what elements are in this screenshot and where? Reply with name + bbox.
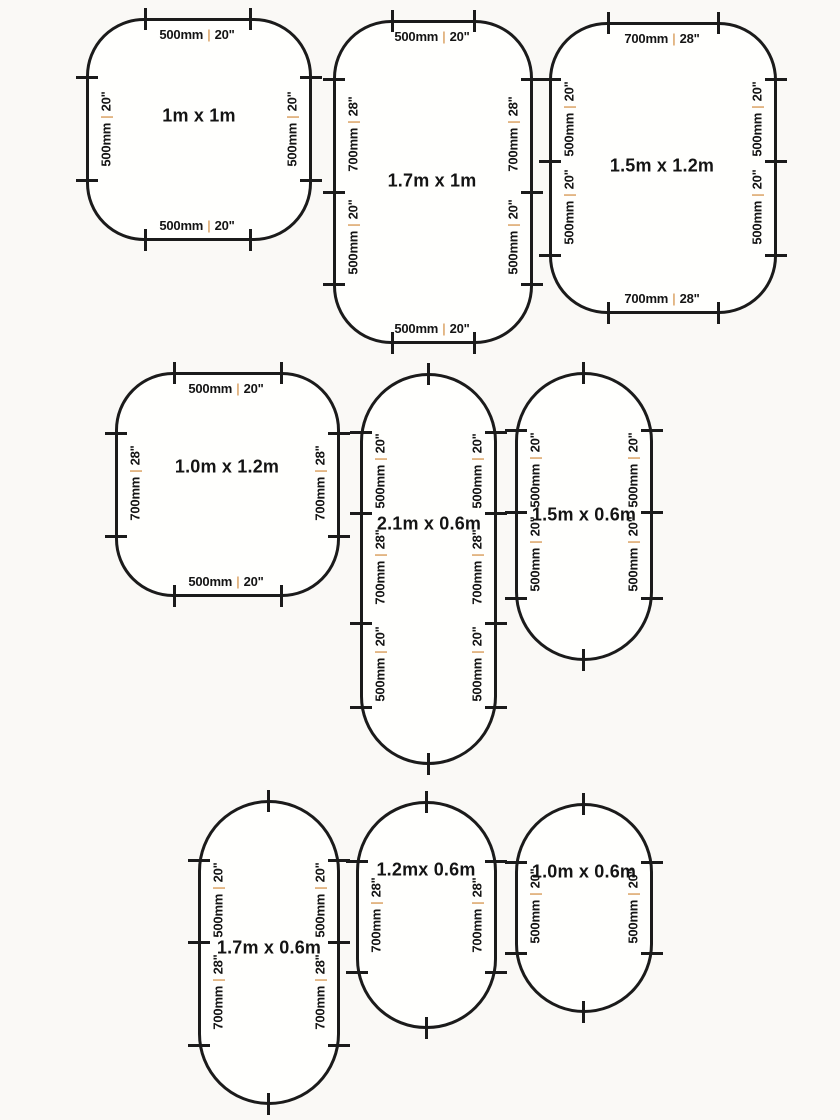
- mm-value: 500mm: [562, 113, 577, 157]
- separator: |: [750, 105, 765, 108]
- inch-value: 20": [470, 433, 485, 453]
- edge-label-right: 500mm|20": [751, 169, 764, 244]
- tick-mark: [249, 8, 252, 30]
- separator: |: [672, 291, 675, 306]
- size-diagram-sheet: 1m x 1m 500mm|20" 500mm|20" 500mm|20" 50…: [0, 0, 840, 1120]
- inch-value: 28": [470, 529, 485, 549]
- inch-value: 20": [528, 868, 543, 888]
- inch-value: 20": [750, 169, 765, 189]
- tick-mark: [641, 429, 663, 432]
- mm-value: 500mm: [750, 201, 765, 245]
- tick-mark: [391, 10, 394, 32]
- tick-mark: [328, 535, 350, 538]
- inch-value: 20": [506, 199, 521, 219]
- tick-mark: [249, 229, 252, 251]
- edge-label-top: 500mm|20": [159, 28, 234, 41]
- edge-label-right: 500mm|20": [507, 199, 520, 274]
- tick-mark: [300, 76, 322, 79]
- size-title: 1.0m x 1.2m: [175, 457, 279, 478]
- separator: |: [373, 553, 388, 556]
- edge-label-right: 500mm|20": [314, 862, 327, 937]
- edge-label-right: 500mm|20": [627, 868, 640, 943]
- edge-label-right: 500mm|20": [751, 81, 764, 156]
- tick-mark: [76, 76, 98, 79]
- diagram-shape-1-5m-x-0-6m: 1.5m x 0.6m 500mm|20" 500mm|20" 500mm|20…: [515, 372, 653, 661]
- separator: |: [506, 223, 521, 226]
- tick-mark: [105, 535, 127, 538]
- separator: |: [562, 193, 577, 196]
- separator: |: [313, 469, 328, 472]
- separator: |: [470, 650, 485, 653]
- tick-mark: [173, 585, 176, 607]
- mm-value: 500mm: [373, 465, 388, 509]
- diagram-shape-2-1m-x-0-6m: 2.1m x 0.6m 500mm|20" 700mm|28" 500mm|20…: [360, 373, 497, 765]
- tick-mark: [280, 362, 283, 384]
- mm-value: 500mm: [750, 113, 765, 157]
- mm-value: 500mm: [188, 381, 232, 396]
- inch-value: 20": [626, 868, 641, 888]
- edge-label-right: 500mm|20": [627, 432, 640, 507]
- mm-value: 500mm: [188, 574, 232, 589]
- tick-mark: [328, 1044, 350, 1047]
- edge-label-left: 500mm|20": [374, 626, 387, 701]
- mm-value: 500mm: [528, 548, 543, 592]
- inch-value: 20": [528, 516, 543, 536]
- size-title: 2.1m x 0.6m: [377, 514, 481, 535]
- separator: |: [313, 886, 328, 889]
- tick-mark: [350, 706, 372, 709]
- inch-value: 20": [99, 91, 114, 111]
- diagram-shape-1-2m-x-0-6m: 1.2mx 0.6m 700mm|28" 700mm|28": [356, 801, 497, 1029]
- size-title: 1.2mx 0.6m: [376, 860, 475, 881]
- separator: |: [346, 120, 361, 123]
- mm-value: 700mm: [470, 909, 485, 953]
- separator: |: [528, 456, 543, 459]
- mm-value: 500mm: [562, 201, 577, 245]
- mm-value: 500mm: [470, 658, 485, 702]
- tick-mark: [323, 78, 345, 81]
- inch-value: 20": [750, 81, 765, 101]
- edge-label-left: 500mm|20": [563, 81, 576, 156]
- tick-mark: [485, 860, 507, 863]
- edge-label-right: 500mm|20": [471, 626, 484, 701]
- inch-value: 28": [506, 96, 521, 116]
- edge-label-right: 700mm|28": [314, 954, 327, 1029]
- tick-mark: [188, 1044, 210, 1047]
- tick-mark: [144, 229, 147, 251]
- mm-value: 700mm: [369, 909, 384, 953]
- mm-value: 700mm: [313, 986, 328, 1030]
- inch-value: 20": [215, 27, 235, 42]
- tick-mark: [765, 160, 787, 163]
- edge-label-left: 500mm|20": [212, 862, 225, 937]
- size-title: 1.5m x 0.6m: [532, 505, 636, 526]
- edge-label-left: 700mm|28": [374, 529, 387, 604]
- tick-mark: [505, 952, 527, 955]
- separator: |: [672, 31, 675, 46]
- inch-value: 20": [244, 381, 264, 396]
- diagram-shape-1-0m-x-1-2m: 1.0m x 1.2m 500mm|20" 500mm|20" 700mm|28…: [115, 372, 340, 597]
- tick-mark: [350, 431, 372, 434]
- edge-label-left: 500mm|20": [374, 433, 387, 508]
- mm-value: 500mm: [506, 231, 521, 275]
- separator: |: [528, 892, 543, 895]
- mm-value: 700mm: [211, 986, 226, 1030]
- mm-value: 500mm: [394, 321, 438, 336]
- mm-value: 700mm: [128, 477, 143, 521]
- inch-value: 28": [211, 954, 226, 974]
- size-title: 1.0m x 0.6m: [532, 862, 636, 883]
- mm-value: 500mm: [99, 123, 114, 167]
- inch-value: 28": [313, 445, 328, 465]
- separator: |: [528, 540, 543, 543]
- tick-mark: [521, 283, 543, 286]
- separator: |: [99, 115, 114, 118]
- separator: |: [626, 892, 641, 895]
- diagram-shape-1-5m-x-1-2m: 1.5m x 1.2m 700mm|28" 700mm|28" 500mm|20…: [549, 22, 777, 314]
- tick-mark: [144, 8, 147, 30]
- separator: |: [128, 469, 143, 472]
- tick-mark: [485, 512, 507, 515]
- mm-value: 700mm: [346, 128, 361, 172]
- diagram-shape-1-7m-x-0-6m: 1.7m x 0.6m 500mm|20" 700mm|28" 500mm|20…: [198, 800, 340, 1105]
- inch-value: 20": [562, 169, 577, 189]
- mm-value: 700mm: [624, 291, 668, 306]
- mm-value: 500mm: [470, 465, 485, 509]
- mm-value: 700mm: [470, 561, 485, 605]
- tick-mark: [323, 283, 345, 286]
- inch-value: 28": [128, 445, 143, 465]
- separator: |: [442, 29, 445, 44]
- tick-mark: [350, 512, 372, 515]
- mm-value: 700mm: [313, 477, 328, 521]
- edge-label-left: 500mm|20": [529, 868, 542, 943]
- tick-mark: [521, 191, 543, 194]
- tick-mark: [427, 363, 430, 385]
- inch-value: 20": [450, 29, 470, 44]
- tick-mark: [323, 191, 345, 194]
- tick-mark: [582, 362, 585, 384]
- tick-mark: [582, 649, 585, 671]
- inch-value: 20": [450, 321, 470, 336]
- tick-mark: [539, 78, 561, 81]
- separator: |: [346, 223, 361, 226]
- separator: |: [506, 120, 521, 123]
- edge-label-right: 500mm|20": [471, 433, 484, 508]
- tick-mark: [425, 1017, 428, 1039]
- diagram-shape-1-0m-x-0-6m: 1.0m x 0.6m 500mm|20" 500mm|20": [515, 803, 653, 1013]
- separator: |: [470, 553, 485, 556]
- tick-mark: [328, 941, 350, 944]
- mm-value: 500mm: [211, 894, 226, 938]
- edge-label-left: 700mm|28": [370, 877, 383, 952]
- separator: |: [626, 540, 641, 543]
- separator: |: [211, 978, 226, 981]
- mm-value: 500mm: [626, 900, 641, 944]
- edge-label-right: 500mm|20": [286, 91, 299, 166]
- inch-value: 28": [369, 877, 384, 897]
- size-title: 1.7m x 0.6m: [217, 938, 321, 959]
- mm-value: 500mm: [626, 548, 641, 592]
- tick-mark: [425, 791, 428, 813]
- edge-label-left: 700mm|28": [212, 954, 225, 1029]
- edge-label-bottom: 500mm|20": [188, 575, 263, 588]
- inch-value: 20": [211, 862, 226, 882]
- mm-value: 700mm: [506, 128, 521, 172]
- tick-mark: [539, 254, 561, 257]
- tick-mark: [485, 431, 507, 434]
- tick-mark: [582, 1001, 585, 1023]
- tick-mark: [346, 860, 368, 863]
- edge-label-top: 500mm|20": [188, 382, 263, 395]
- edge-label-left: 500mm|20": [529, 516, 542, 591]
- separator: |: [207, 218, 210, 233]
- separator: |: [313, 978, 328, 981]
- mm-value: 500mm: [346, 231, 361, 275]
- tick-mark: [765, 254, 787, 257]
- tick-mark: [346, 971, 368, 974]
- edge-label-top: 500mm|20": [394, 30, 469, 43]
- mm-value: 700mm: [624, 31, 668, 46]
- tick-mark: [391, 332, 394, 354]
- tick-mark: [607, 302, 610, 324]
- tick-mark: [188, 941, 210, 944]
- inch-value: 28": [470, 877, 485, 897]
- separator: |: [470, 457, 485, 460]
- inch-value: 28": [313, 954, 328, 974]
- inch-value: 20": [313, 862, 328, 882]
- inch-value: 20": [244, 574, 264, 589]
- mm-value: 500mm: [626, 464, 641, 508]
- separator: |: [442, 321, 445, 336]
- tick-mark: [717, 12, 720, 34]
- tick-mark: [641, 861, 663, 864]
- inch-value: 28": [680, 291, 700, 306]
- tick-mark: [641, 597, 663, 600]
- mm-value: 500mm: [159, 27, 203, 42]
- tick-mark: [582, 793, 585, 815]
- edge-label-right: 500mm|20": [627, 516, 640, 591]
- tick-mark: [188, 859, 210, 862]
- edge-label-bottom: 700mm|28": [624, 292, 699, 305]
- inch-value: 20": [373, 626, 388, 646]
- edge-label-left: 500mm|20": [563, 169, 576, 244]
- inch-value: 28": [346, 96, 361, 116]
- inch-value: 20": [528, 432, 543, 452]
- tick-mark: [505, 429, 527, 432]
- tick-mark: [473, 10, 476, 32]
- separator: |: [207, 27, 210, 42]
- separator: |: [211, 886, 226, 889]
- tick-mark: [427, 753, 430, 775]
- separator: |: [562, 105, 577, 108]
- tick-mark: [765, 78, 787, 81]
- separator: |: [236, 574, 239, 589]
- inch-value: 20": [346, 199, 361, 219]
- edge-label-left: 700mm|28": [129, 445, 142, 520]
- edge-label-bottom: 500mm|20": [159, 219, 234, 232]
- tick-mark: [505, 861, 527, 864]
- mm-value: 500mm: [159, 218, 203, 233]
- tick-mark: [641, 952, 663, 955]
- inch-value: 28": [373, 529, 388, 549]
- edge-label-left: 500mm|20": [347, 199, 360, 274]
- tick-mark: [473, 332, 476, 354]
- separator: |: [236, 381, 239, 396]
- tick-mark: [485, 706, 507, 709]
- inch-value: 20": [626, 516, 641, 536]
- mm-value: 500mm: [373, 658, 388, 702]
- edge-label-right: 700mm|28": [507, 96, 520, 171]
- diagram-shape-1-7m-x-1m: 1.7m x 1m 500mm|20" 500mm|20" 700mm|28" …: [333, 20, 533, 344]
- tick-mark: [173, 362, 176, 384]
- tick-mark: [105, 432, 127, 435]
- tick-mark: [280, 585, 283, 607]
- inch-value: 20": [215, 218, 235, 233]
- separator: |: [373, 650, 388, 653]
- edge-label-left: 700mm|28": [347, 96, 360, 171]
- mm-value: 700mm: [373, 561, 388, 605]
- size-title: 1m x 1m: [162, 106, 235, 127]
- separator: |: [626, 456, 641, 459]
- inch-value: 20": [470, 626, 485, 646]
- diagram-shape-1m-x-1m: 1m x 1m 500mm|20" 500mm|20" 500mm|20" 50…: [86, 18, 312, 241]
- edge-label-right: 700mm|28": [471, 877, 484, 952]
- edge-label-top: 700mm|28": [624, 32, 699, 45]
- inch-value: 20": [626, 432, 641, 452]
- tick-mark: [505, 597, 527, 600]
- tick-mark: [267, 1093, 270, 1115]
- tick-mark: [300, 179, 322, 182]
- tick-mark: [485, 971, 507, 974]
- tick-mark: [350, 622, 372, 625]
- mm-value: 500mm: [285, 123, 300, 167]
- separator: |: [750, 193, 765, 196]
- mm-value: 500mm: [528, 464, 543, 508]
- tick-mark: [267, 790, 270, 812]
- tick-mark: [505, 511, 527, 514]
- separator: |: [470, 901, 485, 904]
- tick-mark: [328, 432, 350, 435]
- separator: |: [373, 457, 388, 460]
- edge-label-right: 700mm|28": [314, 445, 327, 520]
- inch-value: 20": [562, 81, 577, 101]
- edge-label-left: 500mm|20": [529, 432, 542, 507]
- tick-mark: [539, 160, 561, 163]
- inch-value: 20": [285, 91, 300, 111]
- separator: |: [369, 901, 384, 904]
- separator: |: [285, 115, 300, 118]
- tick-mark: [717, 302, 720, 324]
- edge-label-bottom: 500mm|20": [394, 322, 469, 335]
- inch-value: 28": [680, 31, 700, 46]
- tick-mark: [76, 179, 98, 182]
- size-title: 1.7m x 1m: [388, 171, 477, 192]
- tick-mark: [607, 12, 610, 34]
- tick-mark: [641, 511, 663, 514]
- mm-value: 500mm: [528, 900, 543, 944]
- mm-value: 500mm: [313, 894, 328, 938]
- mm-value: 500mm: [394, 29, 438, 44]
- inch-value: 20": [373, 433, 388, 453]
- tick-mark: [485, 622, 507, 625]
- edge-label-left: 500mm|20": [100, 91, 113, 166]
- edge-label-right: 700mm|28": [471, 529, 484, 604]
- size-title: 1.5m x 1.2m: [610, 156, 714, 177]
